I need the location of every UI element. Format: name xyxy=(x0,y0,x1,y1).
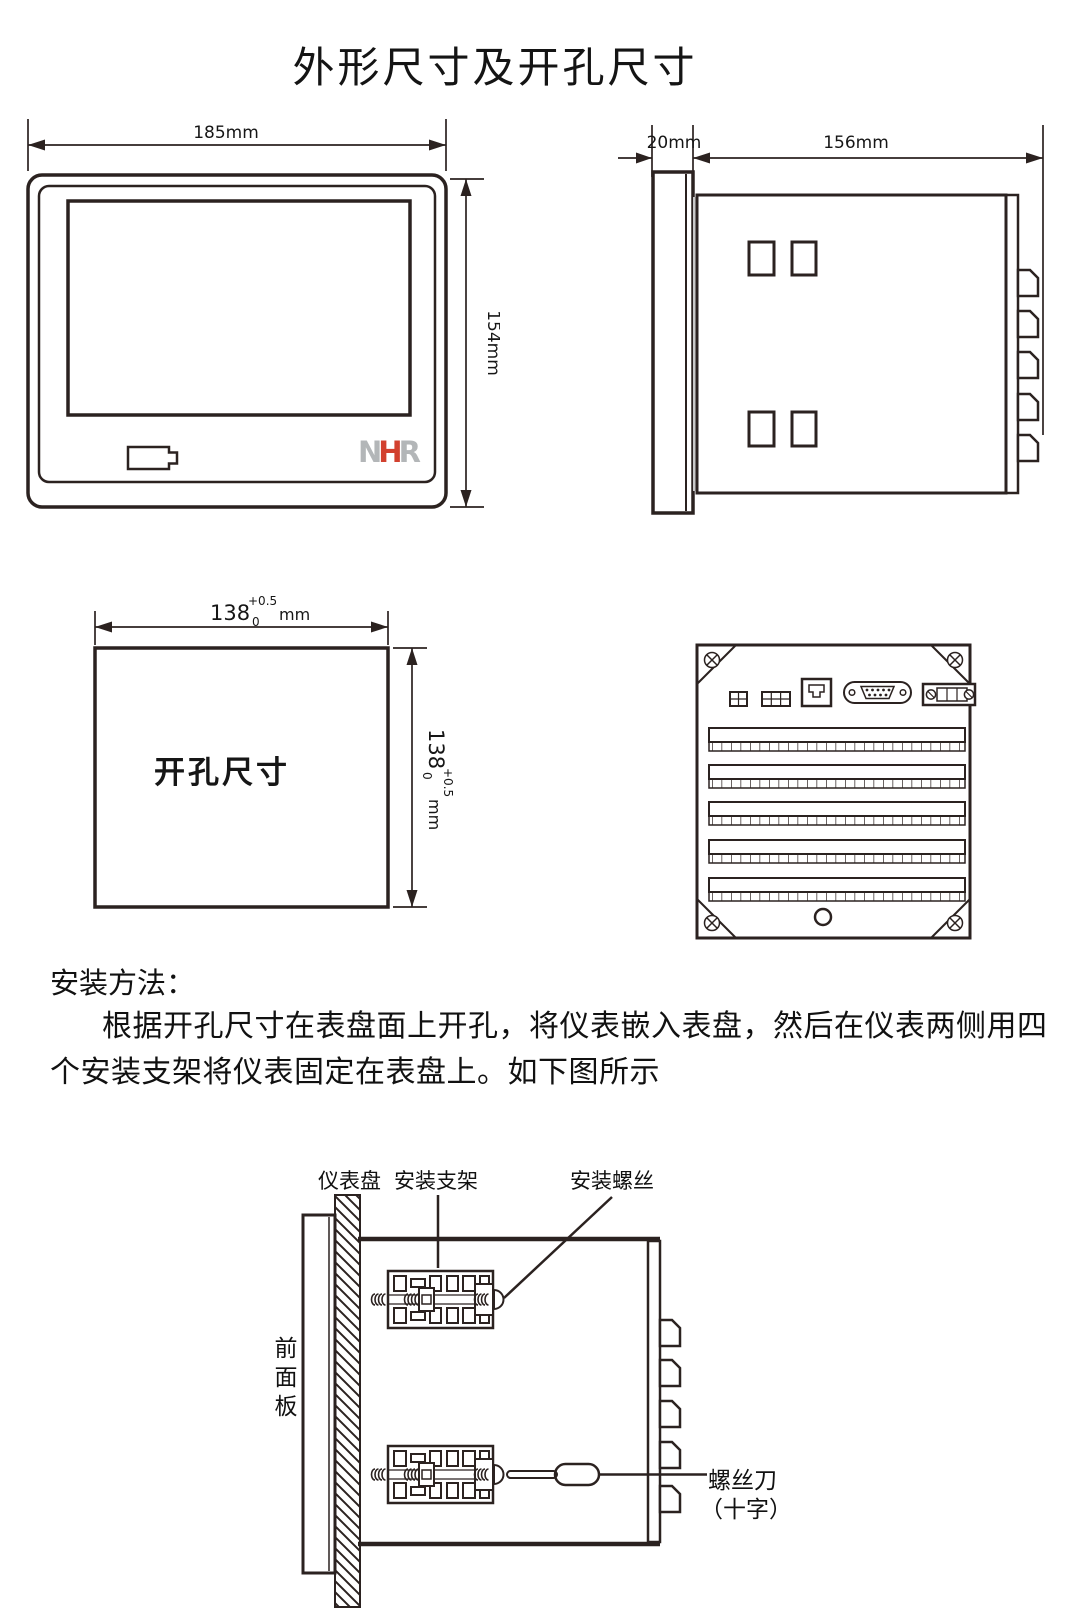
panel-wall-hatched xyxy=(335,1195,360,1607)
label-mounting-screw: 安装螺丝 xyxy=(570,1165,654,1195)
bezel-depth-label: 20mm xyxy=(647,133,702,153)
front-panel-plate xyxy=(303,1215,335,1573)
page-title: 外形尺寸及开孔尺寸 xyxy=(0,34,990,95)
cutout-center-label: 开孔尺寸 xyxy=(154,755,290,790)
cutout-width-tol-lower: 0 xyxy=(252,615,260,629)
cutout-height-tol-upper: +0.5 xyxy=(441,768,455,797)
screw-leader-line xyxy=(504,1197,612,1298)
front-height-dimension: 154mm xyxy=(450,179,500,507)
screw-icon xyxy=(705,916,720,931)
terminal-strip xyxy=(709,728,965,751)
cutout-width-value: 138 xyxy=(210,601,250,625)
cutout-height-tol-lower: 0 xyxy=(420,772,434,780)
screwdriver-shank xyxy=(507,1471,557,1478)
cutout-height-value: 138 xyxy=(424,729,448,769)
screwdriver-handle xyxy=(555,1464,599,1485)
side-view-diagram: 20mm 156mm xyxy=(590,105,1070,525)
cutout-height-unit: mm xyxy=(425,799,444,830)
back-view-diagram xyxy=(655,600,995,950)
front-height-label: 154mm xyxy=(483,310,500,376)
db9-serial-port xyxy=(844,682,911,703)
install-paragraph-line1: 根据开孔尺寸在表盘面上开孔，将仪表嵌入表盘，然后在仪表两侧用四 xyxy=(50,1004,1050,1050)
install-paragraph: 根据开孔尺寸在表盘面上开孔，将仪表嵌入表盘，然后在仪表两侧用四 个安装支架将仪表… xyxy=(50,1004,1050,1096)
brand-logo: NHR xyxy=(358,435,421,469)
power-terminal xyxy=(923,684,975,705)
cutout-width-dimension: 138 +0.5 0 mm xyxy=(95,594,388,645)
screw-icon xyxy=(705,653,720,668)
terminal-bumps xyxy=(660,1320,680,1512)
terminal-strip xyxy=(709,765,965,788)
cutout-diagram: 138 +0.5 0 mm 开孔尺寸 138 +0.5 0 mm xyxy=(55,555,485,955)
ground-hole xyxy=(815,909,831,925)
terminal-block-2pin xyxy=(730,692,747,706)
label-screwdriver-type: （十字） xyxy=(700,1490,792,1524)
ethernet-port xyxy=(802,679,831,706)
terminal-strip xyxy=(709,840,965,863)
body-depth-label: 156mm xyxy=(823,133,889,153)
install-paragraph-line2: 个安装支架将仪表固定在表盘上。如下图所示 xyxy=(50,1050,1050,1096)
cutout-width-unit: mm xyxy=(279,605,310,624)
screw-icon xyxy=(948,653,963,668)
terminal-block-3pin xyxy=(762,692,790,706)
terminal-strip xyxy=(709,802,965,825)
front-view-diagram: 185mm NHR 154mm xyxy=(20,105,500,525)
cutout-height-dimension: 138 +0.5 0 mm xyxy=(393,648,455,907)
mounting-screw-head xyxy=(494,1290,504,1309)
terminal-bumps xyxy=(1018,270,1038,461)
label-mounting-bracket: 安装支架 xyxy=(394,1165,478,1195)
front-width-dimension: 185mm xyxy=(28,119,446,171)
side-bezel xyxy=(653,172,693,513)
cutout-width-tol-upper: +0.5 xyxy=(248,594,277,608)
mounting-bracket-lower xyxy=(372,1446,504,1503)
install-heading: 安装方法： xyxy=(50,960,195,1002)
label-instrument-panel: 仪表盘 xyxy=(318,1165,381,1195)
manual-page: 外形尺寸及开孔尺寸 185mm NHR 154mm xyxy=(0,0,1080,1619)
usb-slot xyxy=(128,447,177,469)
side-body xyxy=(693,195,1038,493)
mounting-bracket-upper xyxy=(372,1271,504,1328)
screw-icon xyxy=(948,916,963,931)
front-view-body: NHR xyxy=(28,175,446,507)
front-width-label: 185mm xyxy=(193,123,259,143)
terminal-strip xyxy=(709,878,965,901)
mounting-screw-head xyxy=(494,1465,504,1484)
label-front-panel: 前面板 xyxy=(266,1336,300,1423)
